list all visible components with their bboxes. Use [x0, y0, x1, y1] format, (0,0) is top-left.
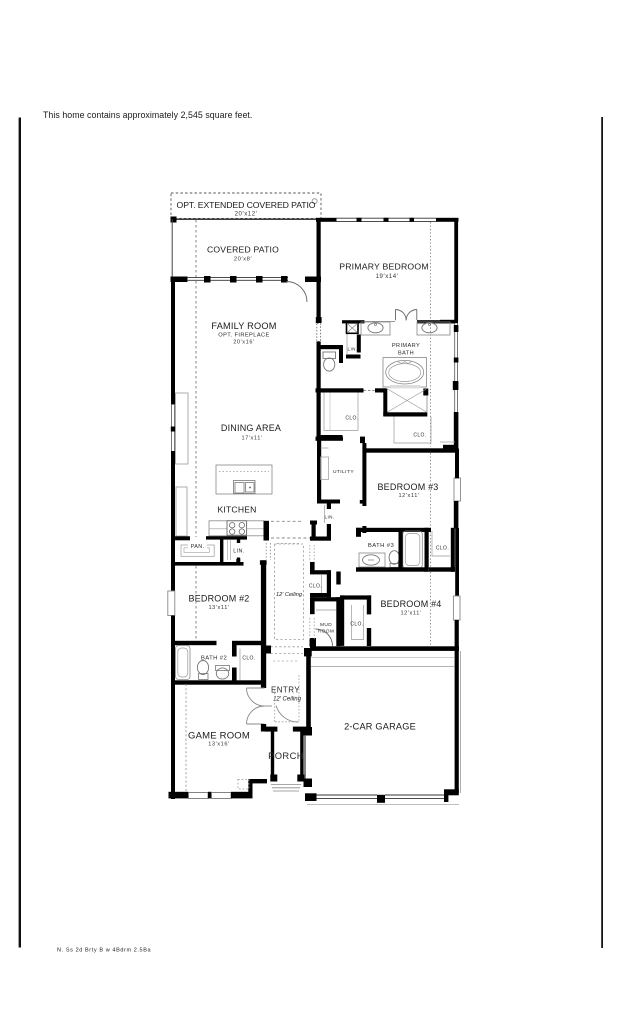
svg-text:ENTRY: ENTRY [271, 686, 300, 695]
svg-text:CLO.: CLO. [436, 546, 449, 552]
svg-text:LIN.: LIN. [233, 549, 245, 555]
svg-text:CLO.: CLO. [309, 584, 322, 590]
svg-text:CLO.: CLO. [242, 656, 255, 662]
svg-text:OPT. EXTENDED COVERED PATIO: OPT. EXTENDED COVERED PATIO [177, 200, 316, 210]
svg-text:PORCH: PORCH [268, 750, 304, 761]
svg-text:COVERED PATIO: COVERED PATIO [207, 245, 279, 255]
svg-text:19′x14′: 19′x14′ [376, 274, 399, 280]
svg-text:FAMILY ROOM: FAMILY ROOM [211, 321, 276, 331]
svg-text:LIN.: LIN. [324, 515, 334, 520]
svg-text:UTILITY: UTILITY [333, 469, 354, 475]
svg-text:KITCHEN: KITCHEN [217, 505, 256, 515]
svg-text:CLO.: CLO. [413, 433, 426, 439]
svg-text:2-CAR GARAGE: 2-CAR GARAGE [344, 722, 416, 732]
svg-text:DINING AREA: DINING AREA [221, 423, 281, 433]
svg-text:LIN.: LIN. [347, 347, 357, 352]
svg-text:GAME ROOM: GAME ROOM [188, 731, 250, 742]
svg-text:BATH: BATH [398, 351, 414, 357]
svg-text:This home contains approximate: This home contains approximately 2,545 s… [43, 110, 252, 120]
svg-text:OPT. FIREPLACE: OPT. FIREPLACE [218, 333, 269, 339]
svg-text:BEDROOM #3: BEDROOM #3 [377, 482, 438, 492]
svg-text:12′x11′: 12′x11′ [400, 611, 421, 617]
svg-text:N. Ss 2d Brty B w 4Bdrm 2: N. Ss 2d Brty B w 4Bdrm 2.5Ba [57, 948, 151, 954]
svg-text:PRIMARY: PRIMARY [392, 343, 420, 349]
svg-text:PAN.: PAN. [191, 544, 205, 550]
svg-text:MUD: MUD [320, 622, 332, 628]
svg-text:12′ Ceiling: 12′ Ceiling [273, 697, 301, 703]
svg-text:CLO.: CLO. [345, 416, 358, 422]
svg-text:BEDROOM #2: BEDROOM #2 [188, 594, 249, 604]
svg-text:13′x16′: 13′x16′ [208, 742, 230, 748]
svg-text:BATH #3: BATH #3 [368, 543, 395, 549]
svg-text:12′ Ceiling: 12′ Ceiling [276, 592, 303, 598]
svg-text:20′x16′: 20′x16′ [233, 340, 255, 346]
svg-text:13′x11′: 13′x11′ [208, 605, 229, 611]
svg-text:20′x8′: 20′x8′ [234, 257, 252, 263]
svg-text:20′x12′: 20′x12′ [235, 212, 258, 218]
svg-text:PRIMARY BEDROOM: PRIMARY BEDROOM [339, 262, 429, 272]
svg-text:12′x11′: 12′x11′ [398, 493, 419, 499]
svg-text:CLO.: CLO. [350, 622, 363, 628]
svg-text:17′x11′: 17′x11′ [241, 436, 262, 442]
svg-text:BEDROOM #4: BEDROOM #4 [380, 599, 441, 609]
